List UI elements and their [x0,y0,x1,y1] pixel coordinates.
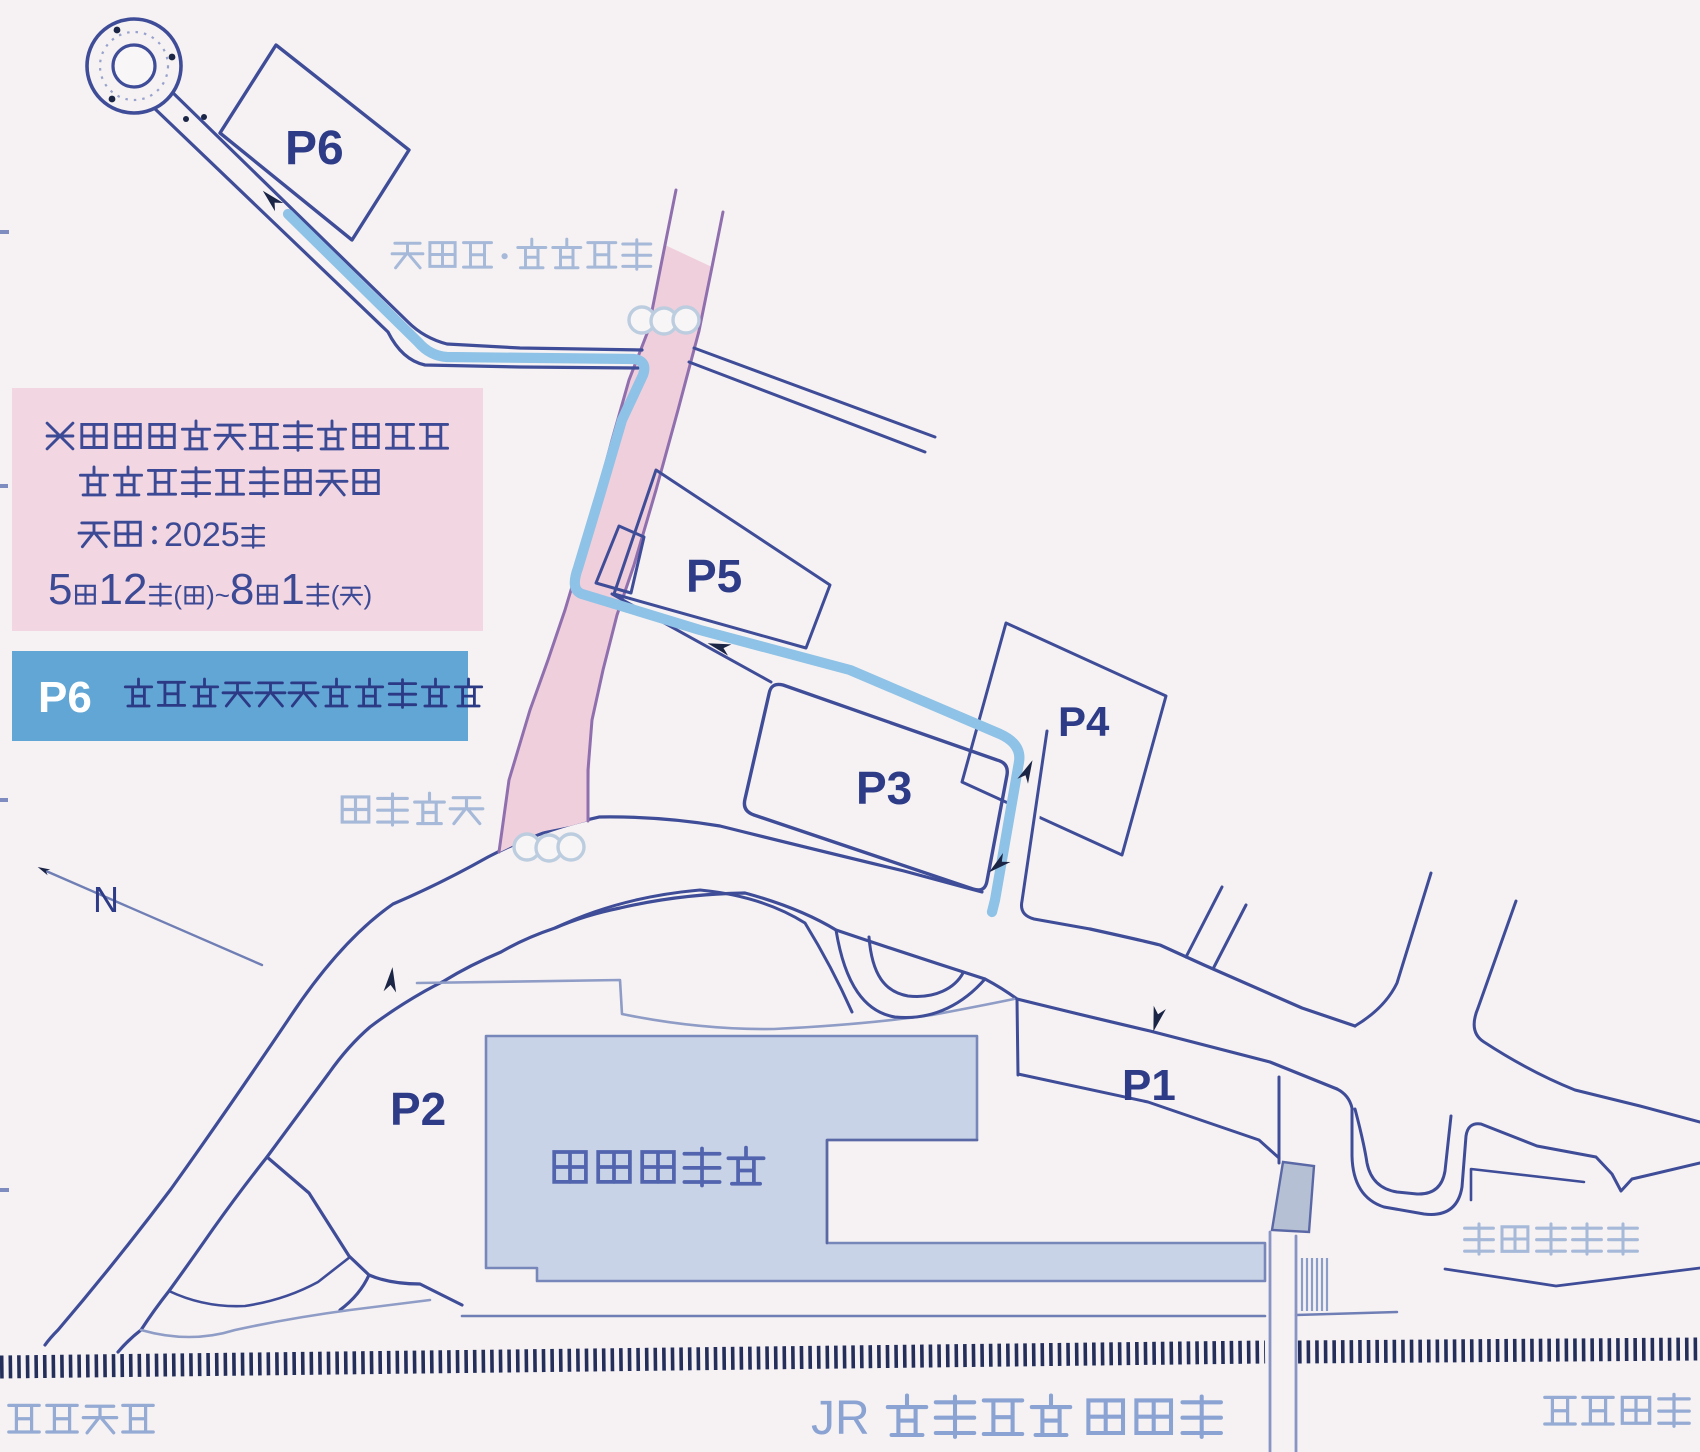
svg-text:)~: )~ [206,580,230,610]
svg-text:(: ( [173,580,182,610]
svg-text:JR: JR [811,1392,870,1445]
svg-text:P6: P6 [38,673,92,722]
svg-text:P3: P3 [856,762,912,814]
svg-text:N: N [93,879,119,920]
svg-text:P5: P5 [686,550,742,602]
svg-text:2025: 2025 [164,516,240,554]
svg-text:P2: P2 [390,1083,446,1135]
svg-text:P6: P6 [285,122,344,175]
svg-text:P1: P1 [1122,1061,1176,1110]
svg-text:(: ( [331,580,340,610]
svg-text:5: 5 [48,565,72,614]
svg-text:12: 12 [99,565,148,614]
svg-text:P4: P4 [1058,698,1110,745]
svg-text:1: 1 [280,565,304,614]
svg-text:): ) [364,580,373,610]
svg-text:8: 8 [230,565,254,614]
